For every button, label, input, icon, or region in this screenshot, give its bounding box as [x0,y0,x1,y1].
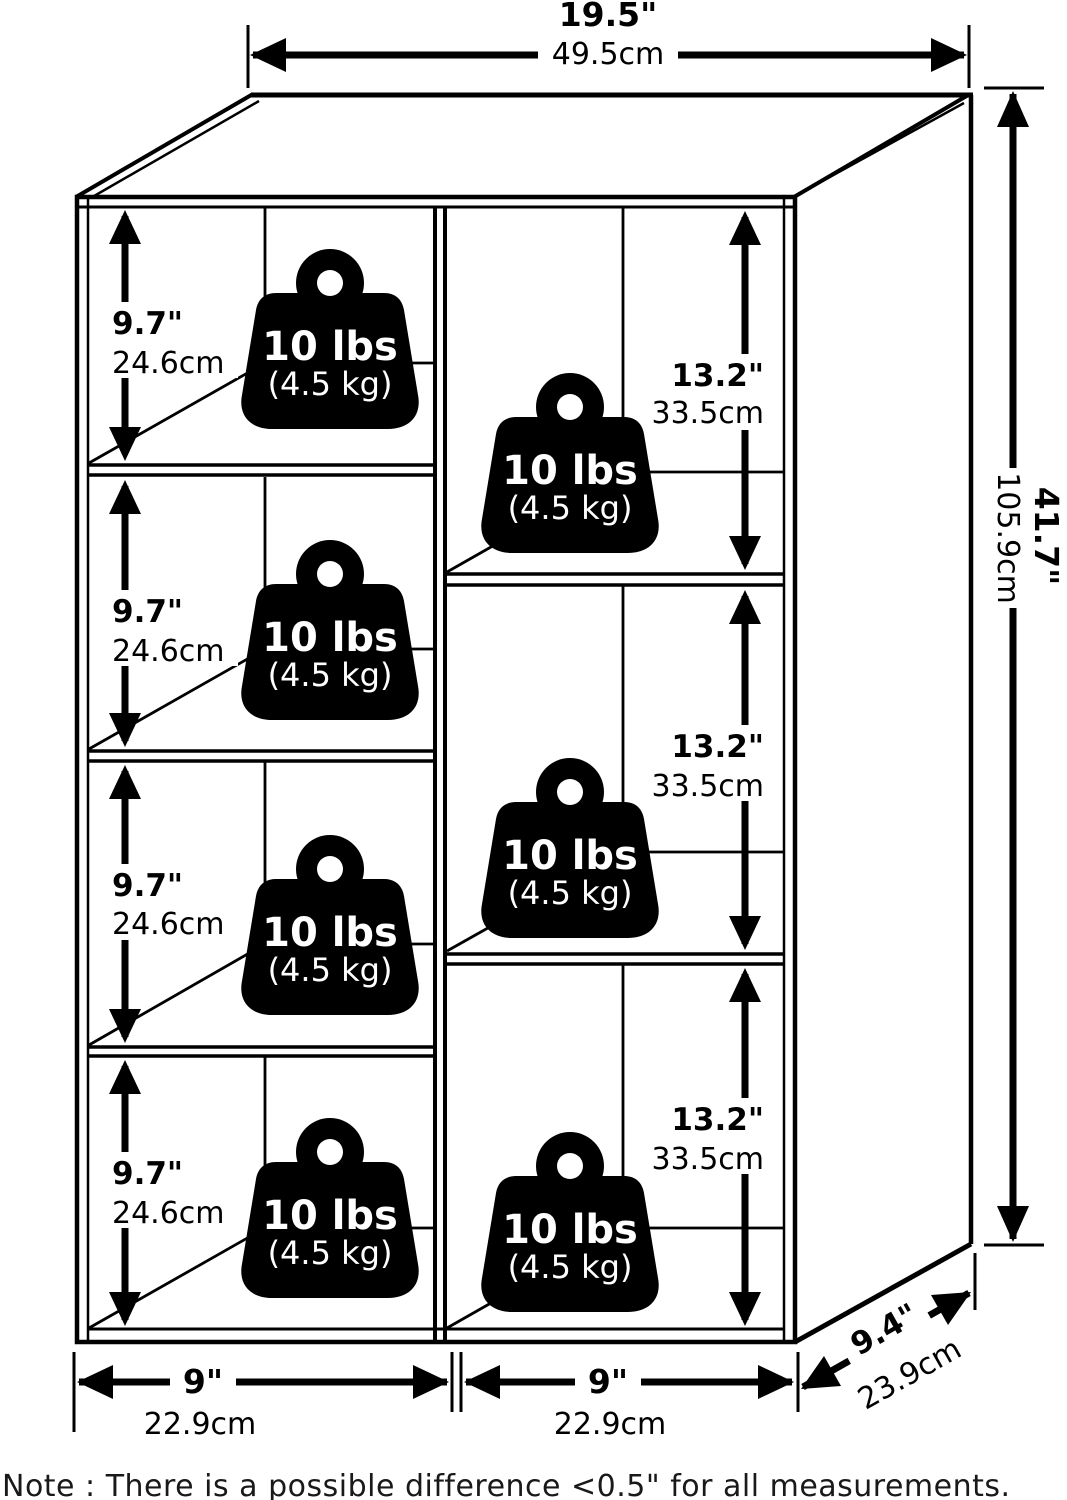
weight-lbs-label: 10 lbs [262,910,398,956]
cube-cm-label: 33.5cm [651,769,764,804]
cabinet-side-face [795,95,971,1342]
measurement-note: Note : There is a possible difference <0… [2,1469,1011,1500]
weight-kg-label: (4.5 kg) [508,1248,633,1286]
arrow-left-icon [250,38,286,72]
cube-cm-label: 33.5cm [651,396,764,431]
weight-lbs-label: 10 lbs [262,1193,398,1239]
bottom-inch-label: 9" [588,1362,628,1401]
arrow-down-icon [997,1206,1029,1242]
weight-kg-label: (4.5 kg) [508,489,633,527]
cube-cm-label: 24.6cm [112,634,225,669]
cube-inch-label: 9.7" [112,1156,183,1192]
cube-inch-label: 9.7" [112,306,183,342]
cube-inch-label: 9.7" [112,868,183,904]
bottom-cm-label: 22.9cm [554,1407,667,1442]
bottom-inch-label: 9" [183,1362,223,1401]
weight-lbs-label: 10 lbs [502,1207,638,1253]
cube-cm-label: 24.6cm [112,907,225,942]
height-dimension: 41.7" 105.9cm [984,88,1067,1245]
width-cm-label: 49.5cm [552,37,665,72]
width-dimension: 19.5" 49.5cm [248,0,969,88]
cube-inch-label: 9.7" [112,594,183,630]
weight-lbs-label: 10 lbs [502,833,638,879]
arrow-right-icon [413,1365,449,1399]
dimension-diagram-canvas: 9.7" 24.6cm 9.7" 24.6cm 9.7" 24.6cm 9.7"… [0,0,1067,1500]
bottom-width-dimensions: 9" 22.9cm 9" 22.9cm [74,1352,798,1442]
weight-lbs-label: 10 lbs [262,324,398,370]
width-inch-label: 19.5" [559,0,658,34]
weight-kg-label: (4.5 kg) [268,1234,393,1272]
arrow-left-icon [464,1365,500,1399]
weight-kg-label: (4.5 kg) [508,874,633,912]
weight-kg-label: (4.5 kg) [268,656,393,694]
cube-cm-label: 24.6cm [112,1196,225,1231]
arrow-left-icon [77,1365,113,1399]
weight-kg-label: (4.5 kg) [268,365,393,403]
furniture-dimension-diagram: 9.7" 24.6cm 9.7" 24.6cm 9.7" 24.6cm 9.7"… [0,0,1067,1500]
cube-cm-label: 24.6cm [112,346,225,381]
cube-inch-label: 13.2" [671,729,764,765]
height-cm-label: 105.9cm [990,472,1025,604]
weight-lbs-label: 10 lbs [502,448,638,494]
arrow-right-icon [931,38,967,72]
weight-kg-label: (4.5 kg) [268,951,393,989]
weight-lbs-label: 10 lbs [262,615,398,661]
bottom-left-dimension: 9" 22.9cm [77,1362,449,1442]
cube-inch-label: 13.2" [671,1102,764,1138]
right-cube-dimensions: 13.2" 33.5cm 13.2" 33.5cm 13.2" 33.5cm [638,211,770,1326]
cube-inch-label: 13.2" [671,358,764,394]
cube-cm-label: 33.5cm [651,1142,764,1177]
bottom-cm-label: 22.9cm [144,1407,257,1442]
arrow-up-icon [997,91,1029,127]
height-inch-label: 41.7" [1027,487,1066,586]
arrow-right-icon [758,1365,794,1399]
bottom-right-dimension: 9" 22.9cm [464,1362,794,1442]
